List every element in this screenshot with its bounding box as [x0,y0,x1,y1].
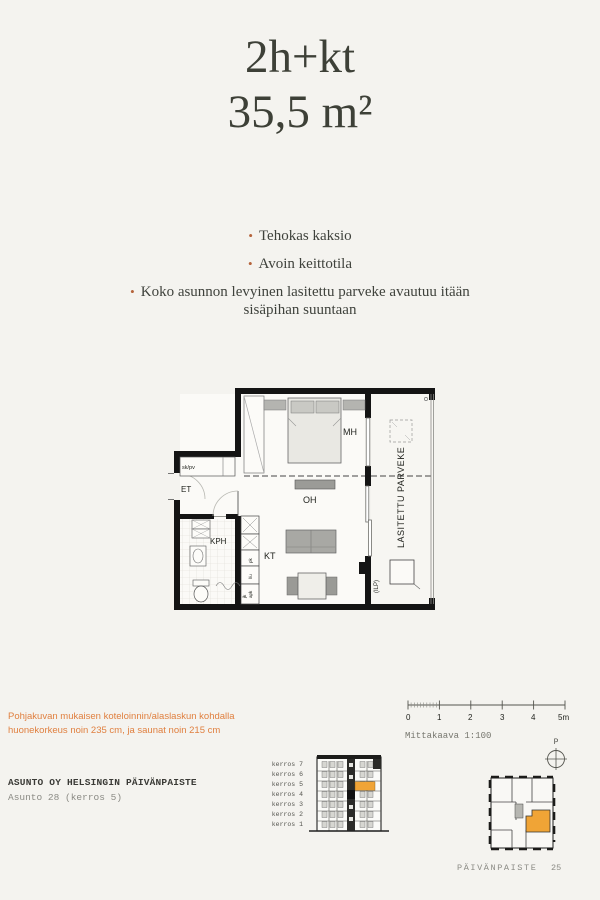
floor-label: kerros 4 [257,790,303,800]
apartment-id: Asunto 28 (kerros 5) [8,792,197,803]
floor-label: kerros 6 [257,770,303,780]
compass-north-label: P [543,738,569,747]
building-elevation: kerros 7 kerros 6 kerros 5 kerros 4 kerr… [257,753,391,838]
tv-stand [295,480,335,489]
scale-caption: Mittakaava 1:100 [405,731,491,741]
svg-text:4: 4 [531,713,536,722]
feature-item: •Tehokas kaksio [120,227,480,246]
floor-labels: kerros 7 kerros 6 kerros 5 kerros 4 kerr… [257,753,307,830]
apartment-area: 35,5 m² [0,85,600,140]
compass-icon [543,747,569,773]
room-label-balcony: LASITETTU PARVEKE [396,447,406,548]
svg-text:pk: pk [248,557,253,563]
compass: P [543,738,569,776]
feature-item: •Avoin keittotila [120,255,480,274]
room-label-oh: OH [303,495,317,505]
bullet-icon: • [248,256,253,271]
svg-text:2: 2 [468,713,473,722]
floor-label: kerros 2 [257,810,303,820]
ceiling-height-note: Pohjakuvan mukaisen koteloinnin/alaslask… [8,710,246,739]
footer-project-name: PÄIVÄNPAISTE [457,863,537,873]
svg-text:apk: apk [248,590,253,598]
room-label-closet: sk/pv [182,465,195,471]
project-block: ASUNTO OY HELSINGIN PÄIVÄNPAISTE Asunto … [8,777,197,803]
feature-item: •Koko asunnon levyinen lasitettu parveke… [120,283,480,321]
feature-list: •Tehokas kaksio •Avoin keittotila •Koko … [0,227,600,329]
svg-text:3: 3 [500,713,505,722]
floor-plan: pk l/u apk jk [168,388,440,620]
toilet [193,580,209,602]
bullet-icon: • [130,284,135,299]
page-title: 2h+kt 35,5 m² [0,30,600,140]
wardrobe [244,396,264,473]
sofa [286,530,336,553]
room-label-kt: KT [264,551,276,561]
dining-table [287,573,337,599]
elevation-drawing [307,753,391,838]
svg-text:0: 0 [406,713,411,722]
svg-text:l/u: l/u [248,574,253,579]
bathroom-sink [190,546,206,566]
stair-core [515,804,523,818]
floor-label: kerros 5 [257,780,303,790]
floor-label: kerros 1 [257,820,303,830]
svg-text:jk: jk [242,594,247,599]
svg-text:5m: 5m [558,713,569,722]
washer-dryer [192,520,210,538]
project-name: ASUNTO OY HELSINGIN PÄIVÄNPAISTE [8,777,197,788]
scale-bar: 0 1 2 3 4 5m [405,697,575,728]
svg-text:1: 1 [437,713,442,722]
brochure-page: 2h+kt 35,5 m² •Tehokas kaksio •Avoin kei… [0,0,600,900]
room-label-ilp: (ILP) [374,580,380,593]
floor-label: kerros 3 [257,800,303,810]
room-label-kph: KPH [210,537,227,546]
room-label-et: ET [181,485,191,494]
highlighted-floor-unit [355,782,375,791]
room-label-mh: MH [343,427,357,437]
site-key-plan [486,772,558,859]
bullet-icon: • [248,228,253,243]
footer-page-number: 25 [551,863,561,873]
apartment-type: 2h+kt [0,30,600,85]
floor-label: kerros 7 [257,760,303,770]
